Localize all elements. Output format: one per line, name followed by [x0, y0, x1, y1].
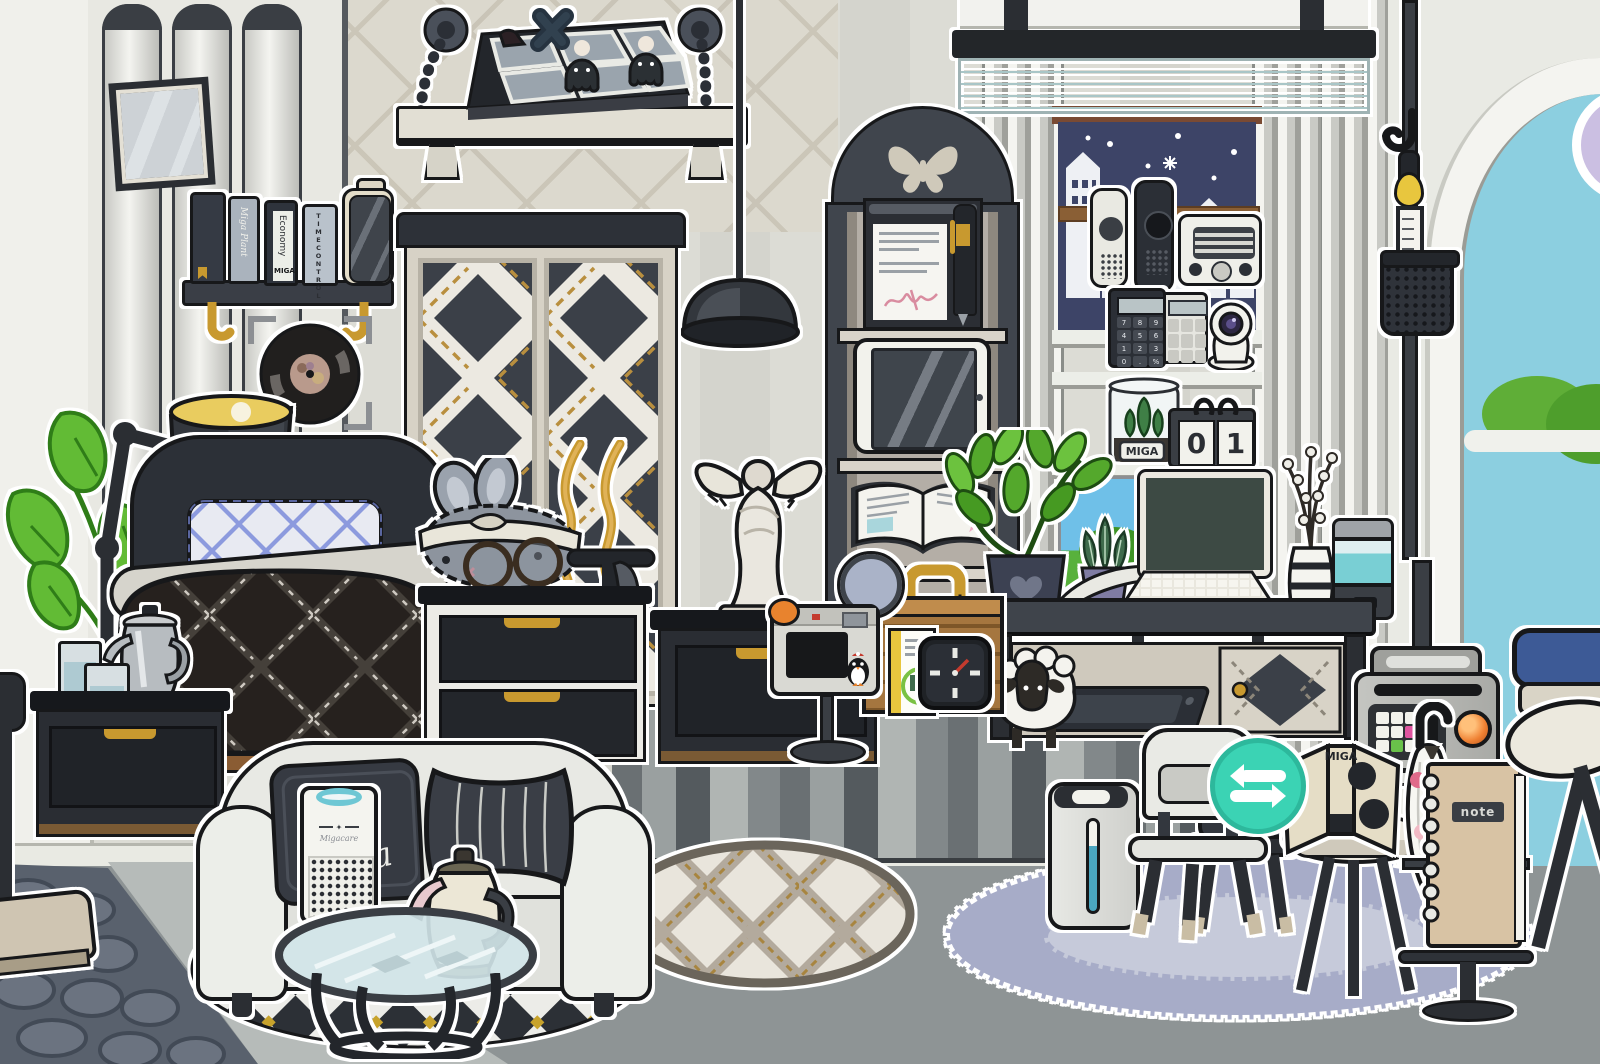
laptop-screen — [1140, 472, 1270, 576]
text-line — [879, 248, 919, 251]
camera-flash — [842, 612, 868, 628]
chair-seat — [1128, 836, 1268, 862]
book-timecontrol[interactable]: TIMECONTROL — [302, 204, 338, 286]
water-level-tube — [1086, 818, 1100, 914]
awning-post — [1300, 0, 1324, 34]
oval-argyle-rug[interactable] — [615, 840, 915, 988]
calc-key[interactable]: 0 — [1117, 356, 1131, 367]
awning-bar — [952, 30, 1376, 58]
mirror-glass — [349, 195, 391, 283]
calc-key[interactable]: . — [1133, 356, 1147, 367]
calc-key[interactable]: 7 — [1117, 317, 1131, 328]
wardrobe-top — [396, 212, 686, 248]
book-economy-brand: MIGA — [274, 267, 295, 275]
edge-floor-lamp[interactable] — [0, 672, 106, 1002]
penguin-sticker — [844, 650, 872, 688]
white-drawer-chest[interactable] — [410, 440, 660, 772]
camera-pole — [820, 694, 834, 746]
signature — [881, 284, 943, 314]
mirror-glass — [116, 84, 208, 184]
camera-red-dot — [812, 614, 820, 620]
pipe-cap — [242, 4, 302, 30]
basket-rim — [1380, 250, 1460, 268]
machine-pole — [1412, 560, 1432, 656]
calc-key[interactable]: 9 — [1149, 317, 1163, 328]
wall-pole-basket[interactable] — [1378, 0, 1468, 560]
coffee-table[interactable] — [275, 845, 537, 1060]
book-plain[interactable] — [190, 192, 226, 284]
calculator-shelf-items[interactable]: 7 8 9 4 5 6 1 2 3 0 . % — [1108, 288, 1260, 370]
awning-post — [1004, 0, 1028, 34]
emblem-line — [345, 826, 359, 828]
pen-clip — [950, 220, 955, 254]
book-spine-text: MIGA — [1325, 750, 1358, 763]
chair-cushion — [1512, 628, 1600, 688]
right-white-table[interactable] — [1505, 700, 1600, 1010]
cloud — [1464, 430, 1600, 452]
thermo-drop — [1394, 172, 1424, 208]
black-remote[interactable] — [1134, 180, 1174, 292]
calc-key[interactable]: % — [1149, 356, 1163, 367]
machine-slot — [1374, 684, 1482, 696]
notebook-label: note — [1452, 802, 1504, 822]
radio-knob[interactable] — [1189, 263, 1202, 276]
text-line — [879, 262, 939, 265]
lamp-pole — [0, 720, 12, 902]
camera[interactable] — [770, 604, 880, 696]
card-edge — [891, 631, 901, 713]
leg-tip — [1132, 913, 1148, 935]
black-calculator[interactable]: 7 8 9 4 5 6 1 2 3 0 . % — [1108, 288, 1166, 368]
humidifier-top — [1054, 786, 1128, 808]
calc-key[interactable]: 5 — [1133, 330, 1147, 341]
table-leg — [1296, 856, 1335, 991]
text-line — [879, 232, 939, 235]
desk-cabinet-door[interactable] — [1218, 646, 1342, 734]
drawer-handle — [504, 692, 560, 702]
button-grid — [1145, 249, 1169, 275]
radio-knob[interactable] — [1239, 263, 1252, 276]
pen-band — [956, 224, 970, 246]
cap-slot — [1386, 656, 1470, 668]
clock-face — [926, 644, 984, 702]
chair-leg — [1182, 864, 1199, 927]
book-time-title: TIMECONTROL — [315, 212, 322, 300]
humidifier-button — [1072, 790, 1110, 804]
table-leg — [1531, 771, 1588, 949]
white-calculator[interactable] — [1160, 292, 1208, 364]
book-economy-label: Economy MIGA — [273, 211, 293, 281]
hanging-basket — [1380, 252, 1454, 336]
radio[interactable] — [1178, 214, 1262, 286]
pipe-cap — [102, 4, 162, 30]
camera-stand-group[interactable] — [770, 552, 900, 772]
button-grid — [1100, 253, 1122, 279]
tic-tac-toe-board[interactable] — [448, 8, 698, 120]
room-scene: 7 8 9 4 5 6 1 2 3 0 . % — [0, 0, 1600, 1064]
table-leg — [1573, 765, 1600, 894]
tablet-camera-dot — [1184, 697, 1195, 705]
calendar-rings — [1171, 393, 1259, 415]
window-awning[interactable] — [952, 0, 1376, 120]
book-script[interactable]: Miga Plant — [228, 196, 260, 284]
calc-key[interactable]: 8 — [1133, 317, 1147, 328]
white-remote[interactable] — [1090, 188, 1128, 288]
calc-keys — [1168, 319, 1206, 363]
dpad — [1099, 217, 1123, 241]
shelf-leg — [424, 144, 460, 180]
calc-key[interactable]: 2 — [1133, 343, 1147, 354]
drawer-handle — [104, 729, 156, 739]
drawer-handle — [504, 618, 560, 628]
lamp-shade — [674, 268, 806, 358]
calc-key[interactable]: 6 — [1149, 330, 1163, 341]
pendant-lamp[interactable] — [674, 0, 806, 360]
sofa-foot — [232, 993, 252, 1017]
wall-mirror-frame[interactable] — [108, 77, 215, 192]
calc-key[interactable]: 3 — [1149, 343, 1163, 354]
pipe-cap — [172, 4, 232, 30]
purifier-emblem: ✦ — [312, 822, 366, 832]
bookmark — [198, 267, 207, 279]
remote-radio-shelf-items[interactable] — [1090, 180, 1262, 292]
desk-group[interactable] — [980, 430, 1400, 752]
security-camera[interactable] — [1202, 300, 1260, 370]
calc-key[interactable]: 4 — [1117, 330, 1131, 341]
calc-screen — [1117, 297, 1165, 315]
emblem-star-icon: ✦ — [336, 823, 343, 832]
swap-items-button[interactable] — [1210, 738, 1306, 834]
table-legs — [297, 973, 515, 1059]
drawer — [439, 615, 637, 683]
swap-arrows-icon — [1226, 760, 1290, 812]
purifier-brand-text: Migacare — [300, 834, 378, 843]
stand-base — [1422, 1000, 1514, 1022]
radio-grill — [1193, 227, 1255, 259]
clipboard[interactable] — [863, 198, 983, 330]
radio-knob[interactable] — [1211, 261, 1232, 282]
dpad — [1144, 211, 1173, 240]
book-script-title: Miga Plant — [238, 207, 247, 257]
calc-key[interactable]: 1 — [1117, 343, 1131, 354]
camera-orange-button — [768, 598, 800, 626]
butterfly-icon — [883, 134, 963, 198]
spiral-rings — [1418, 772, 1444, 940]
shelf-hand-mirror[interactable] — [342, 178, 394, 288]
humidifier[interactable] — [1048, 782, 1140, 930]
square-clock[interactable] — [918, 636, 992, 716]
lamp-cord — [736, 0, 743, 278]
calc-keypad[interactable]: 7 8 9 4 5 6 1 2 3 0 . % — [1117, 317, 1163, 367]
table-leg — [1348, 860, 1359, 996]
camera-screen — [786, 632, 848, 678]
clipboard-paper — [873, 224, 947, 320]
sofa-foot — [594, 993, 614, 1017]
notebook-label-text: note — [1461, 805, 1496, 819]
text-line — [879, 240, 939, 243]
text-line — [879, 270, 927, 273]
leg-tip — [1181, 920, 1195, 941]
emblem-line — [319, 826, 333, 828]
desk-top — [980, 598, 1376, 636]
camera-base — [790, 740, 866, 764]
pen — [953, 204, 977, 316]
book-economy-title: Economy — [277, 215, 286, 256]
purifier-ring — [316, 788, 362, 806]
tablet-button — [976, 394, 983, 401]
leg-tip — [1246, 913, 1262, 935]
book-economy[interactable]: Economy MIGA — [264, 200, 298, 286]
balloon-partial — [1572, 94, 1600, 202]
